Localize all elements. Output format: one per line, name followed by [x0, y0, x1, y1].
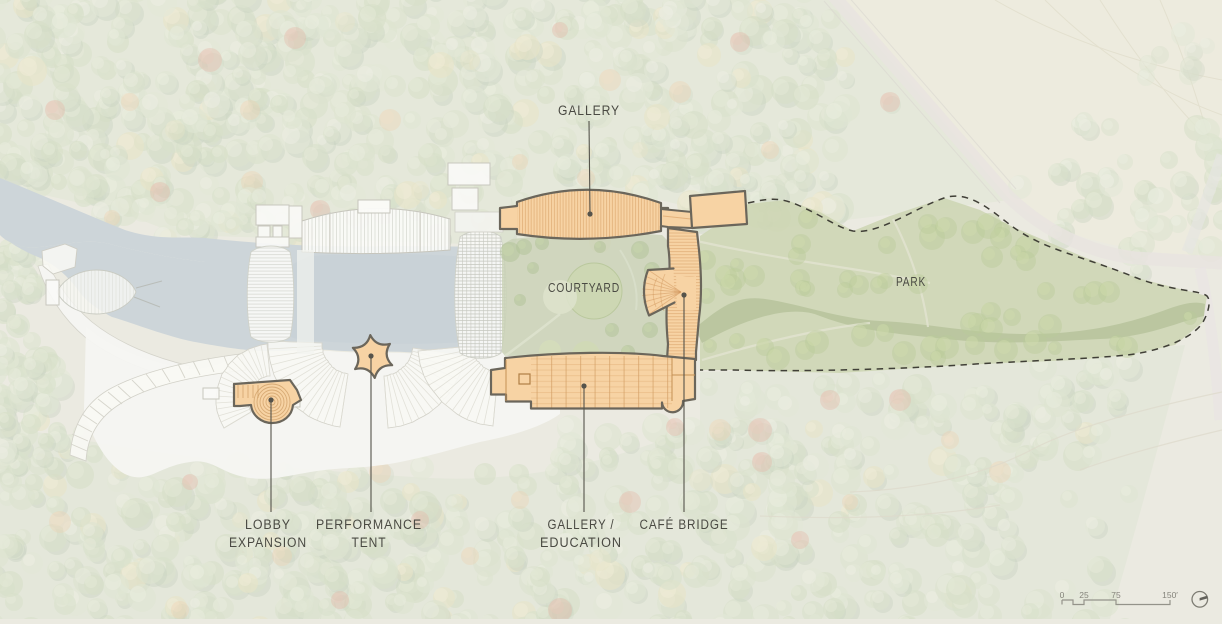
svg-text:GALLERY: GALLERY: [558, 103, 620, 118]
svg-text:0: 0: [1060, 590, 1065, 600]
svg-text:EXPANSION: EXPANSION: [229, 535, 307, 550]
svg-text:COURTYARD: COURTYARD: [548, 281, 620, 295]
svg-text:PARK: PARK: [896, 275, 926, 289]
svg-text:150′: 150′: [1162, 590, 1178, 600]
svg-text:75: 75: [1111, 590, 1121, 600]
svg-text:TENT: TENT: [352, 535, 387, 550]
svg-text:CAFÉ BRIDGE: CAFÉ BRIDGE: [640, 517, 729, 532]
svg-text:EDUCATION: EDUCATION: [540, 535, 622, 550]
svg-text:PERFORMANCE: PERFORMANCE: [316, 517, 422, 532]
svg-text:LOBBY: LOBBY: [245, 517, 291, 532]
svg-text:25: 25: [1079, 590, 1089, 600]
svg-text:GALLERY /: GALLERY /: [548, 517, 615, 532]
